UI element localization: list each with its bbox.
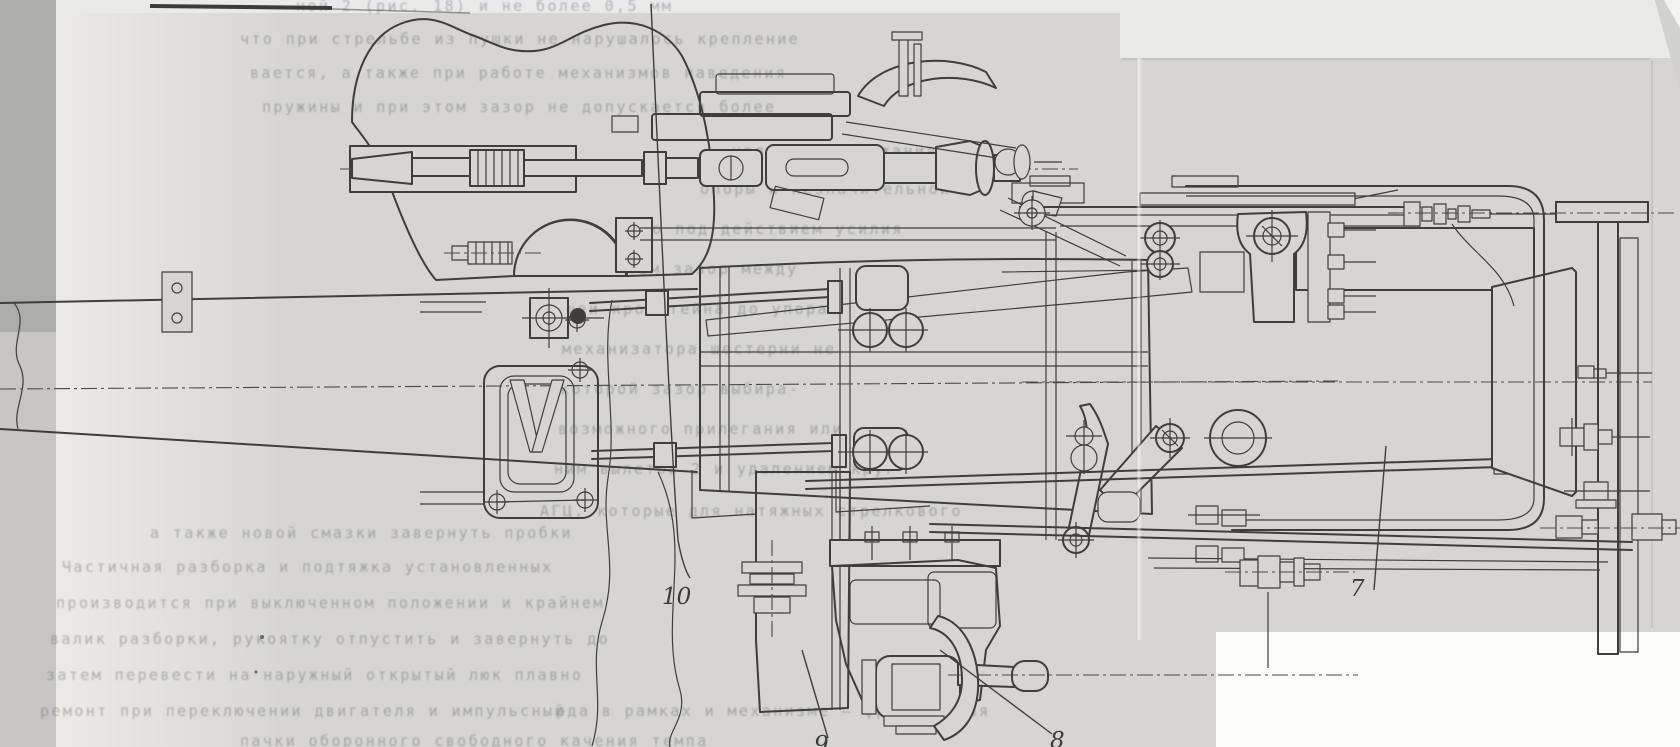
paper-fold-crease bbox=[1136, 58, 1142, 640]
scanned-page: ной 2 (рис. 18) и не более 0,5 мм что пр… bbox=[0, 0, 1680, 747]
barrel-clamp bbox=[162, 272, 192, 332]
knurled-thumb-piece bbox=[770, 186, 824, 219]
central-gearbox bbox=[838, 232, 1056, 560]
curved-handle bbox=[858, 61, 996, 106]
bolt-pad bbox=[616, 218, 652, 272]
callout-7: 7 bbox=[1350, 446, 1386, 602]
breech-sleeve bbox=[640, 228, 1288, 514]
callout-label-7: 7 bbox=[1350, 576, 1365, 602]
callout-label-8: 8 bbox=[1050, 728, 1065, 747]
bell-crank-levers bbox=[1058, 404, 1272, 558]
callout-9: 9 bbox=[802, 650, 829, 747]
callout-label-10: 10 bbox=[662, 584, 691, 610]
callout-label-9: 9 bbox=[814, 732, 829, 747]
technical-drawing: 10 9 8 7 bbox=[0, 0, 1680, 747]
handwheel-knob bbox=[862, 616, 1358, 740]
mount-wall-section bbox=[350, 19, 714, 280]
